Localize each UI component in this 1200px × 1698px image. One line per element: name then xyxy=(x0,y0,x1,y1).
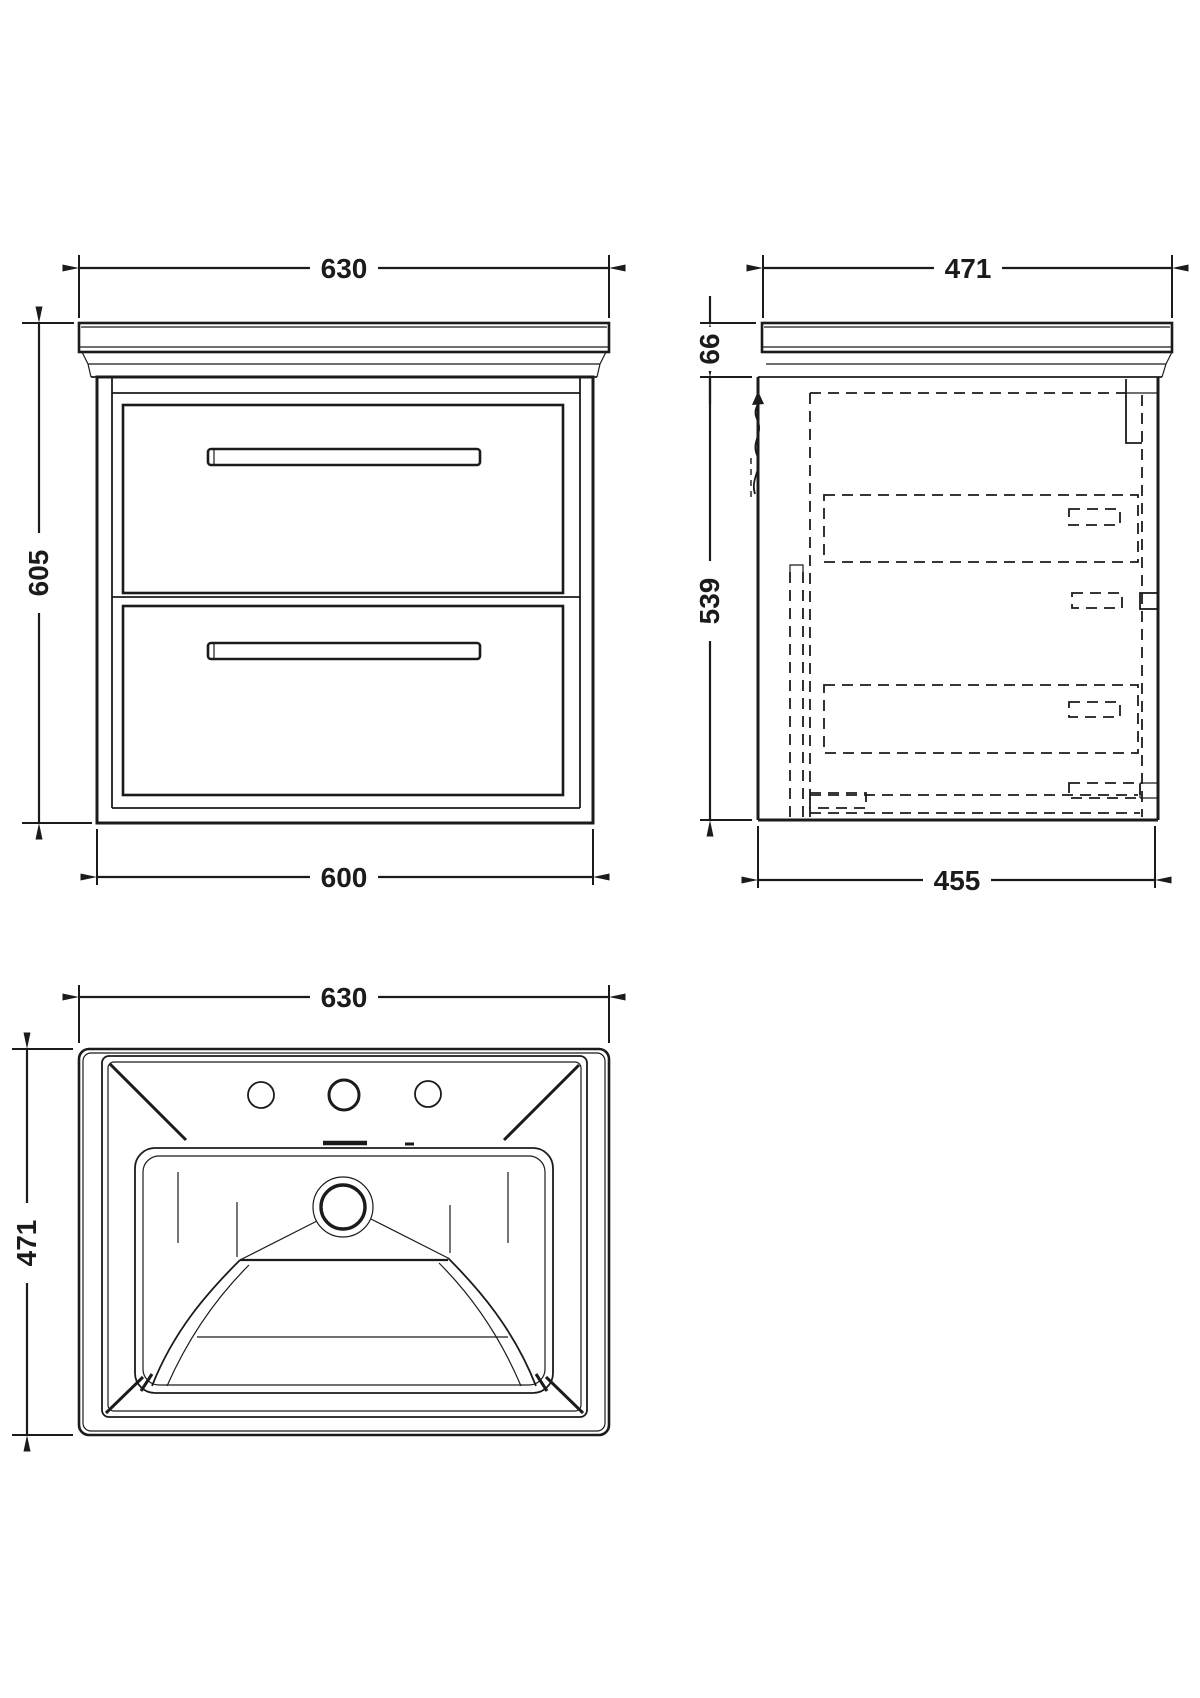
side-depth-label: 471 xyxy=(945,253,992,284)
side-body-height-label: 539 xyxy=(694,578,725,625)
front-width-label: 630 xyxy=(321,253,368,284)
drawer-top-handle xyxy=(208,449,480,465)
drawing-canvas: 630 605 600 xyxy=(0,0,1200,1698)
plan-width-label: 630 xyxy=(321,982,368,1013)
side-counter-height-label: 66 xyxy=(694,333,725,364)
side-bottom-depth-label: 455 xyxy=(934,865,981,896)
tap-holes xyxy=(248,1080,441,1110)
deck-corner-diagonal-tr xyxy=(504,1065,579,1140)
front-cabinet xyxy=(97,377,593,823)
basin-deck xyxy=(79,1049,609,1435)
side-hidden-detail xyxy=(790,393,1142,817)
front-elevation-view: 630 605 600 xyxy=(22,252,609,893)
front-bottom-width-label: 600 xyxy=(321,862,368,893)
basin-bowl xyxy=(135,1148,553,1393)
front-drawer-bottom xyxy=(123,606,563,795)
leader-arrowhead xyxy=(752,391,764,405)
plan-depth-label: 471 xyxy=(11,1220,42,1267)
side-countertop xyxy=(758,323,1172,377)
side-drawer-box-bottom xyxy=(824,685,1138,753)
drawer-bottom-handle xyxy=(208,643,480,659)
deck-corner-diagonal-tl xyxy=(110,1064,186,1140)
drain-inner xyxy=(321,1185,365,1229)
side-extension-lines xyxy=(700,255,1172,888)
technical-drawing-page: 630 605 600 xyxy=(0,0,1200,1698)
tap-hole-left xyxy=(248,1082,274,1108)
front-countertop xyxy=(79,323,609,377)
plan-view-basin: 630 471 xyxy=(11,981,609,1435)
front-extension-lines xyxy=(22,255,609,885)
side-drawer-box-top xyxy=(824,495,1138,562)
front-height-label: 605 xyxy=(23,550,54,597)
tap-hole-right xyxy=(415,1081,441,1107)
tap-hole-center xyxy=(329,1080,359,1110)
front-drawer-top xyxy=(123,405,563,593)
side-elevation-view: 471 66 539 455 xyxy=(694,252,1172,896)
